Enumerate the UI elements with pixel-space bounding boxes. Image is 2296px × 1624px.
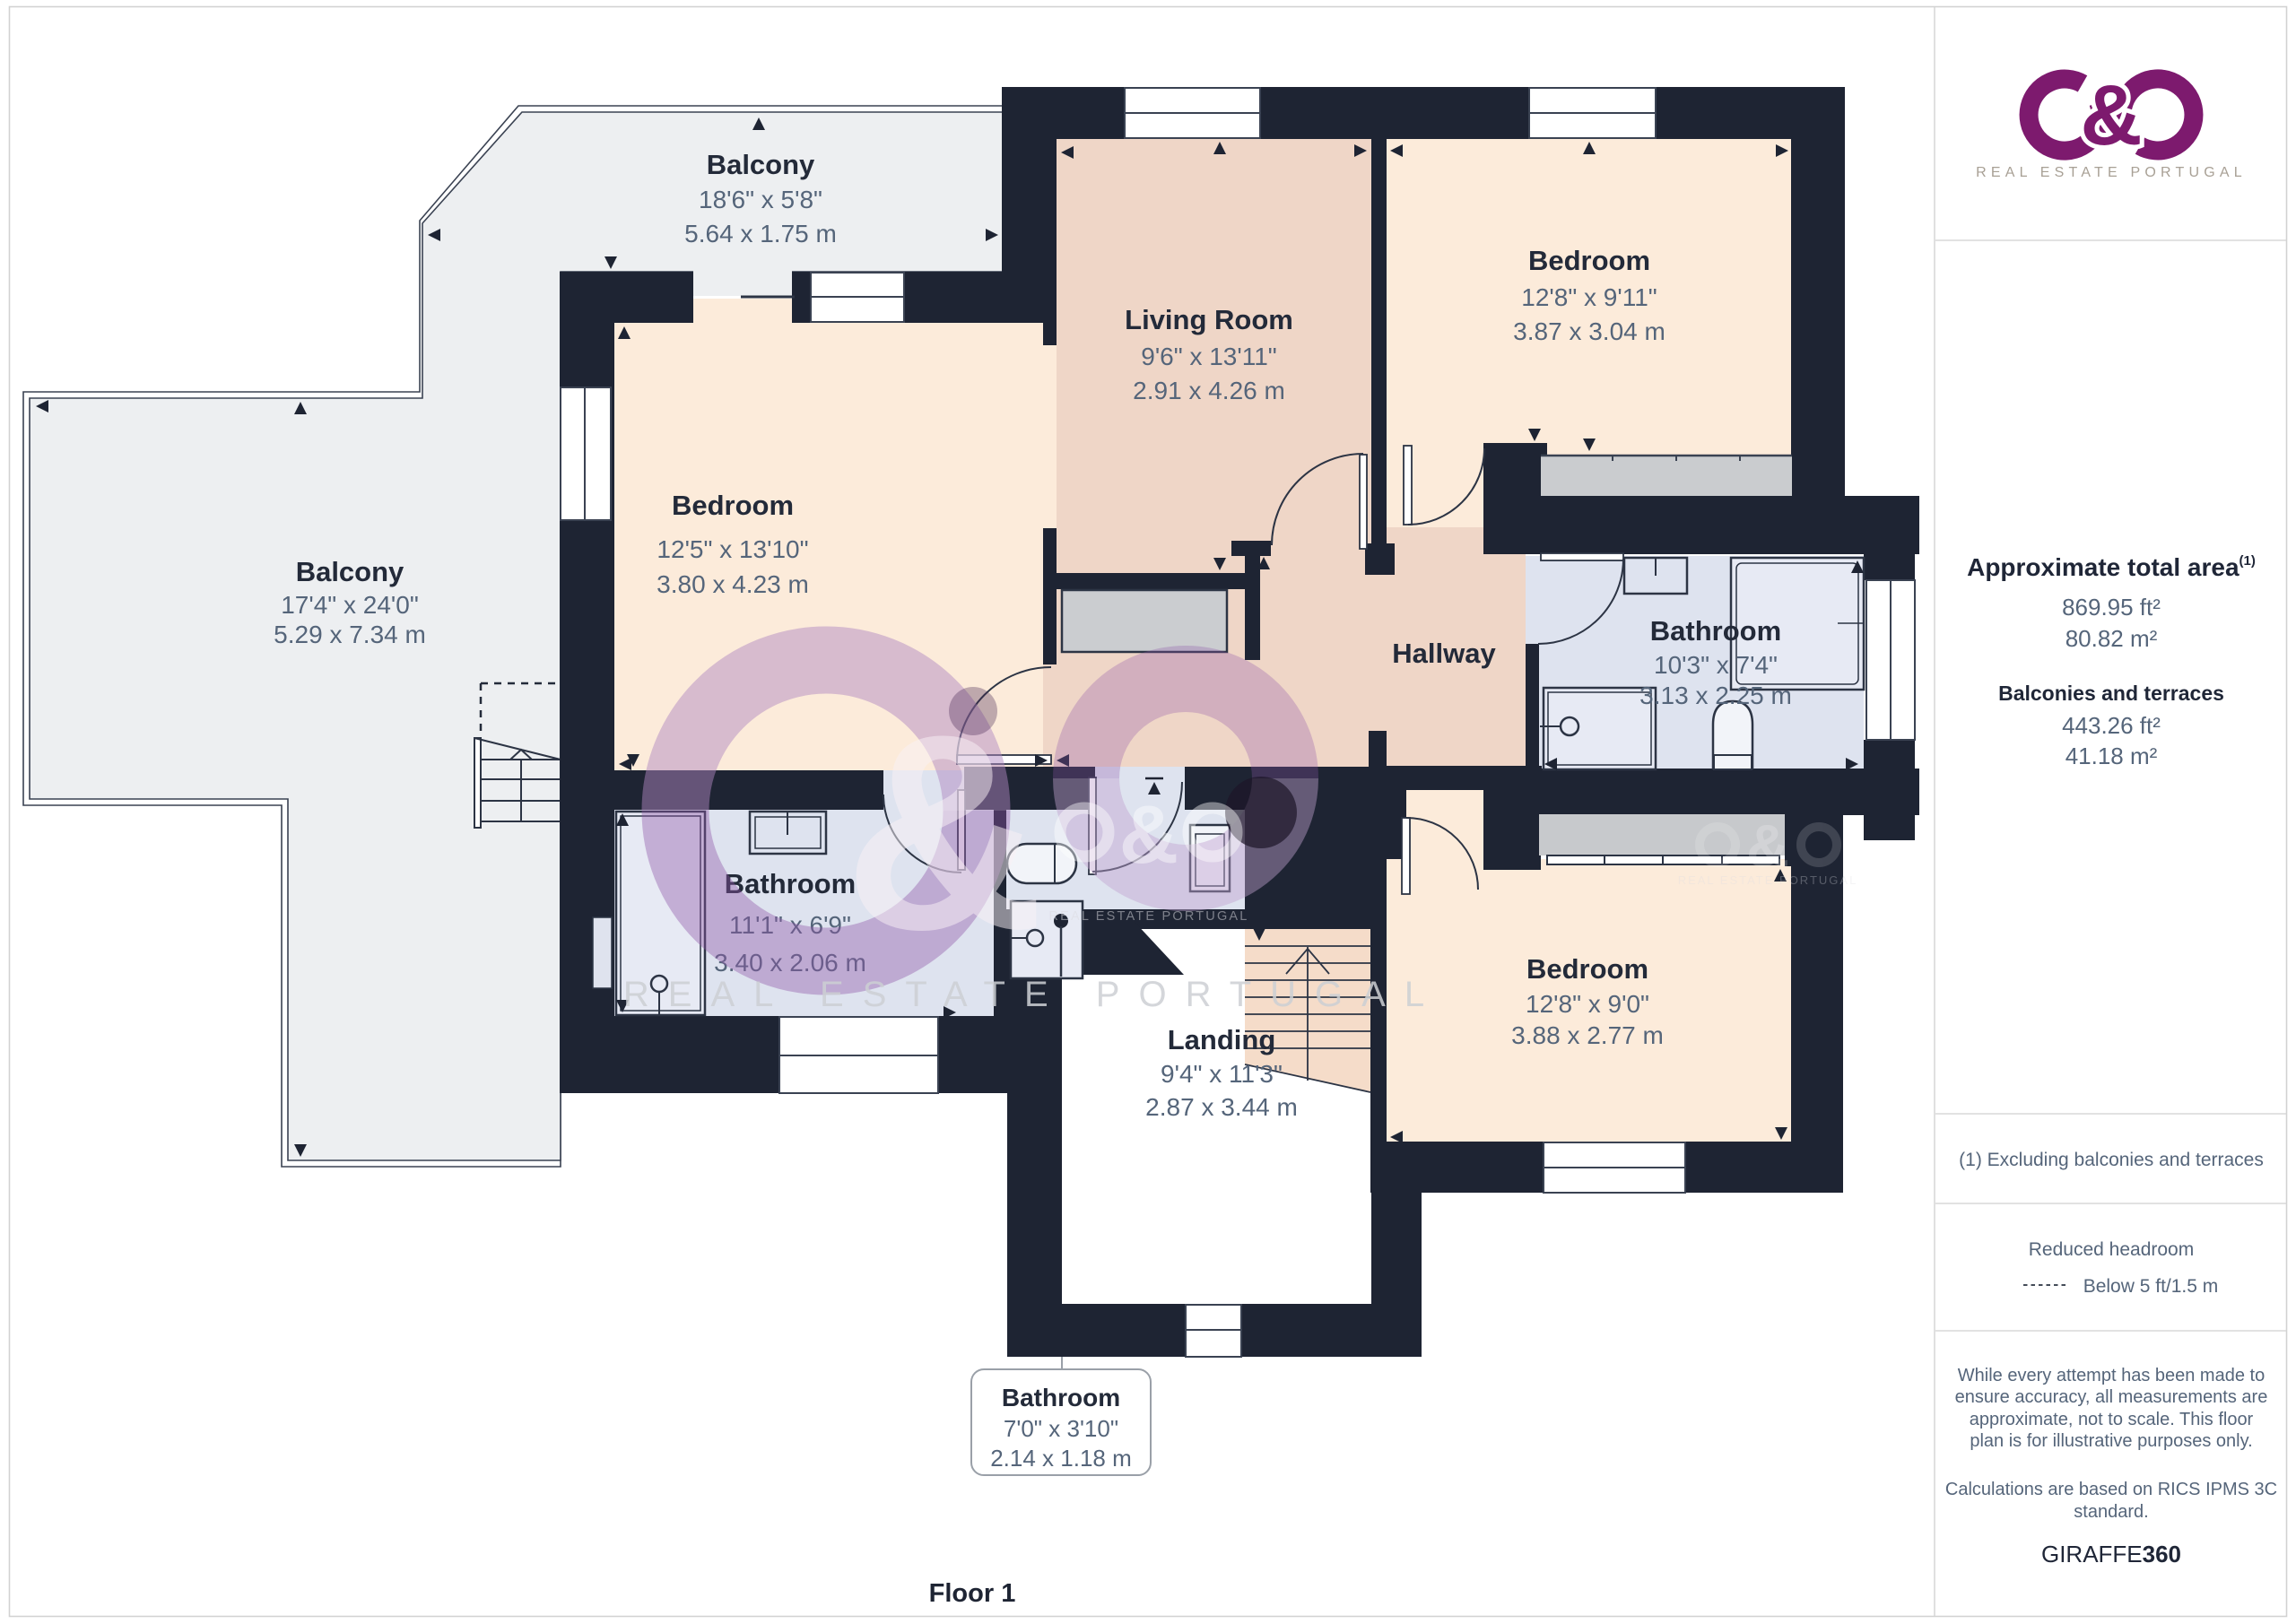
svg-text:Floor 1: Floor 1 — [929, 1579, 1016, 1608]
svg-text:17'4" x 24'0": 17'4" x 24'0" — [281, 591, 419, 619]
svg-text:12'8" x 9'11": 12'8" x 9'11" — [1521, 283, 1657, 311]
svg-text:Approximate total area(1): Approximate total area(1) — [1967, 553, 2256, 581]
svg-text:Balcony: Balcony — [707, 149, 815, 180]
svg-text:80.82 m²: 80.82 m² — [2066, 625, 2158, 652]
svg-text:9'4" x 11'3": 9'4" x 11'3" — [1161, 1060, 1283, 1088]
svg-text:41.18 m²: 41.18 m² — [2066, 743, 2158, 769]
svg-text:plan is for illustrative purpo: plan is for illustrative purposes only. — [1970, 1431, 2252, 1451]
svg-text:Bathroom: Bathroom — [1002, 1384, 1120, 1411]
svg-text:(1) Excluding balconies and te: (1) Excluding balconies and terraces — [1959, 1150, 2264, 1170]
svg-text:REAL ESTATE PORTUGAL: REAL ESTATE PORTUGAL — [623, 975, 1443, 1014]
svg-text:ensure accuracy, all measureme: ensure accuracy, all measurements are — [1955, 1387, 2268, 1407]
svg-text:GIRAFFE360: GIRAFFE360 — [2041, 1541, 2181, 1568]
svg-text:Balcony: Balcony — [296, 556, 404, 587]
svg-text:REAL ESTATE PORTUGAL: REAL ESTATE PORTUGAL — [1976, 165, 2247, 180]
svg-text:3.87 x 3.04 m: 3.87 x 3.04 m — [1513, 317, 1665, 345]
svg-text:2.14 x 1.18 m: 2.14 x 1.18 m — [990, 1445, 1132, 1472]
svg-text:3.88 x 2.77 m: 3.88 x 2.77 m — [1511, 1021, 1664, 1049]
svg-text:&: & — [1119, 789, 1178, 881]
svg-text:9'6" x 13'11": 9'6" x 13'11" — [1141, 343, 1276, 370]
svg-text:2.87 x 3.44 m: 2.87 x 3.44 m — [1145, 1093, 1298, 1121]
svg-text:While every attempt has been m: While every attempt has been made to — [1958, 1366, 2265, 1385]
svg-text:5.29 x 7.34 m: 5.29 x 7.34 m — [274, 621, 426, 648]
svg-text:&: & — [844, 676, 1045, 987]
svg-text:Below 5 ft/1.5 m: Below 5 ft/1.5 m — [2083, 1276, 2219, 1297]
svg-text:REAL ESTATE PORTUGAL: REAL ESTATE PORTUGAL — [1678, 873, 1858, 887]
svg-text:Reduced headroom: Reduced headroom — [2029, 1239, 2194, 1260]
svg-text:Bedroom: Bedroom — [1526, 953, 1648, 985]
svg-text:Living Room: Living Room — [1125, 304, 1293, 335]
svg-text:&: & — [1746, 812, 1789, 879]
svg-text:REAL ESTATE PORTUGAL: REAL ESTATE PORTUGAL — [1048, 909, 1248, 924]
svg-text:7'0" x 3'10": 7'0" x 3'10" — [1004, 1415, 1118, 1442]
svg-text:Bathroom: Bathroom — [1650, 615, 1781, 647]
svg-text:Landing: Landing — [1168, 1024, 1276, 1055]
svg-text:Balconies and terraces: Balconies and terraces — [1998, 682, 2224, 705]
svg-text:3.13 x 2.25 m: 3.13 x 2.25 m — [1639, 682, 1792, 709]
svg-text:Bedroom: Bedroom — [1528, 245, 1650, 276]
svg-text:5.64 x 1.75 m: 5.64 x 1.75 m — [684, 220, 837, 248]
svg-text:Bedroom: Bedroom — [672, 490, 794, 521]
svg-text:Hallway: Hallway — [1392, 638, 1496, 669]
svg-text:approximate, not to scale. Thi: approximate, not to scale. This floor — [1970, 1410, 2254, 1429]
svg-text:869.95 ft²: 869.95 ft² — [2062, 594, 2161, 621]
svg-text:standard.: standard. — [2074, 1502, 2148, 1522]
svg-text:Calculations are based on RICS: Calculations are based on RICS IPMS 3C — [1945, 1480, 2277, 1499]
svg-text:10'3" x 7'4": 10'3" x 7'4" — [1654, 651, 1778, 679]
svg-text:2.91 x 4.26 m: 2.91 x 4.26 m — [1133, 377, 1285, 404]
svg-text:3.80 x 4.23 m: 3.80 x 4.23 m — [657, 570, 809, 598]
svg-text:18'6" x 5'8": 18'6" x 5'8" — [699, 186, 822, 213]
svg-text:12'8" x 9'0": 12'8" x 9'0" — [1526, 990, 1649, 1018]
svg-text:12'5" x 13'10": 12'5" x 13'10" — [657, 535, 808, 563]
svg-text:443.26 ft²: 443.26 ft² — [2062, 712, 2161, 739]
svg-text:&: & — [2080, 67, 2142, 163]
